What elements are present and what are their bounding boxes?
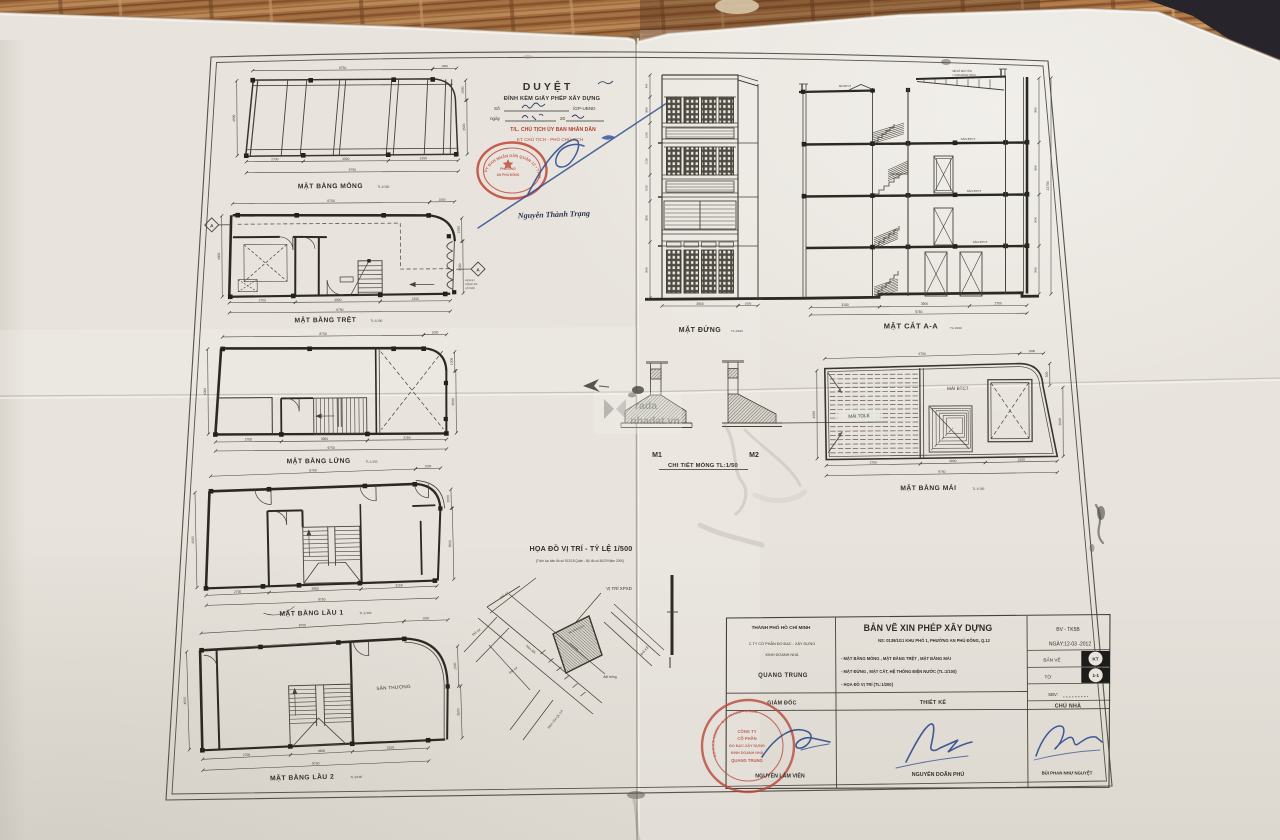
svg-text:3900: 3900	[342, 157, 350, 161]
svg-text:HỌA ĐỒ VỊ TRÍ - TỶ LỆ 1/500: HỌA ĐỒ VỊ TRÍ - TỶ LỆ 1/500	[530, 543, 633, 553]
svg-text:4000: 4000	[217, 253, 221, 261]
svg-text:SÀN BTCT: SÀN BTCT	[961, 137, 976, 141]
svg-text:3900: 3900	[311, 587, 319, 591]
svg-text:1000: 1000	[461, 86, 465, 94]
svg-text:T/L. CHỦ TỊCH ỦY BAN NHÂN DÂN: T/L. CHỦ TỊCH ỦY BAN NHÂN DÂN	[510, 126, 596, 133]
svg-text:1000: 1000	[439, 198, 446, 202]
svg-text:3900: 3900	[645, 267, 649, 273]
svg-text:nhadat.vn: nhadat.vn	[630, 415, 680, 427]
svg-text:đất trống: đất trống	[603, 675, 616, 679]
svg-text:9750: 9750	[318, 597, 326, 601]
svg-text:MÁI BTCT: MÁI BTCT	[839, 84, 852, 88]
svg-text:3150: 3150	[841, 303, 849, 307]
svg-text:Số: Số	[494, 106, 500, 111]
svg-text:VỊ TRÍ XPXD: VỊ TRÍ XPXD	[606, 586, 632, 591]
svg-text:8750: 8750	[919, 352, 927, 356]
svg-text:3800: 3800	[645, 107, 649, 113]
svg-text:9750: 9750	[312, 761, 320, 765]
svg-text:DUYỆT: DUYỆT	[523, 80, 574, 93]
svg-text:SÀN BTCT: SÀN BTCT	[973, 240, 988, 244]
svg-text:NS: 0139/1G1 KHU PHỐ 1, PHƯỜNG: NS: 0139/1G1 KHU PHỐ 1, PHƯỜNG AN PHÚ ĐÔ…	[878, 638, 991, 643]
svg-text:QUANG TRUNG: QUANG TRUNG	[731, 758, 763, 763]
svg-text:4000: 4000	[232, 114, 236, 122]
svg-text:CÔNG TY: CÔNG TY	[737, 729, 756, 734]
svg-text:4000: 4000	[183, 697, 187, 705]
svg-text:4000: 4000	[812, 411, 816, 419]
svg-text:3150: 3150	[1018, 458, 1026, 462]
svg-text:2700: 2700	[870, 461, 878, 465]
svg-text:1000: 1000	[422, 616, 429, 620]
svg-text:AN PHÚ ĐÔNG: AN PHÚ ĐÔNG	[497, 172, 520, 177]
svg-text:8750: 8750	[339, 66, 347, 70]
svg-text:3900: 3900	[1034, 267, 1038, 273]
svg-text:SBV:: SBV:	[1048, 692, 1058, 697]
svg-text:8750: 8750	[299, 623, 307, 627]
svg-text:13700: 13700	[1046, 181, 1050, 190]
svg-text:1000: 1000	[446, 495, 450, 503]
svg-text:8750: 8750	[309, 468, 317, 472]
svg-text:- HỌA ĐỒ VỊ TRÍ (TL:1/200): - HỌA ĐỒ VỊ TRÍ (TL:1/200)	[841, 682, 894, 687]
svg-text:9750: 9750	[938, 470, 946, 474]
svg-text:C.TY CỔ PHẦN ĐO ĐẠC - XÂY DỰNG: C.TY CỔ PHẦN ĐO ĐẠC - XÂY DỰNG	[749, 641, 815, 646]
svg-text:- MẶT BẰNG MÓNG , MẶT BẰNG TRỆ: - MẶT BẰNG MÓNG , MẶT BẰNG TRỆT , MẶT BẰ…	[841, 656, 951, 661]
svg-text:1-1: 1-1	[1092, 673, 1099, 678]
svg-text:SÀN BTCT: SÀN BTCT	[967, 189, 982, 193]
svg-text:TL:1/100: TL:1/100	[370, 319, 382, 323]
svg-text:3900: 3900	[318, 749, 326, 753]
svg-text:L=1000 ĐÓNG TRẦN: L=1000 ĐÓNG TRẦN	[952, 74, 975, 77]
svg-text:TỜ: TỜ	[1045, 674, 1052, 680]
svg-text:9750: 9750	[349, 168, 357, 172]
svg-text:2700: 2700	[259, 298, 267, 302]
svg-text:THIẾT KẾ: THIẾT KẾ	[920, 699, 947, 706]
svg-text:2700: 2700	[243, 753, 251, 757]
svg-text:3500: 3500	[458, 263, 462, 271]
svg-text:KINH DOANH NHÀ: KINH DOANH NHÀ	[766, 653, 799, 657]
svg-text:MẶT ĐỨNG: MẶT ĐỨNG	[679, 325, 722, 334]
svg-text:BẢN VẼ: BẢN VẼ	[1043, 657, 1060, 663]
svg-text:1000: 1000	[457, 226, 461, 234]
svg-text:BẢN VẼ XIN PHÉP XÂY DỰNG: BẢN VẼ XIN PHÉP XÂY DỰNG	[864, 622, 993, 633]
svg-text:KINH DOANH NHÀ: KINH DOANH NHÀ	[731, 750, 764, 755]
svg-text:CHI TIẾT MÓNG TL:1/50: CHI TIẾT MÓNG TL:1/50	[668, 461, 738, 469]
svg-text:3600: 3600	[1034, 217, 1038, 223]
svg-text:2700: 2700	[995, 302, 1003, 306]
svg-text:1000: 1000	[425, 464, 432, 468]
svg-text:2700: 2700	[645, 158, 649, 164]
svg-text:3500: 3500	[451, 398, 455, 406]
svg-text:MÁI BTCT: MÁI BTCT	[947, 385, 969, 391]
svg-text:400: 400	[645, 83, 649, 88]
svg-text:9750: 9750	[336, 308, 344, 312]
svg-text:3900: 3900	[321, 437, 329, 441]
svg-text:TL:1/100: TL:1/100	[731, 329, 743, 333]
svg-text:3500: 3500	[1058, 418, 1062, 426]
svg-text:(Trích lục bản đồ số 912/18 Qu: (Trích lục bản đồ số 912/18 Quận - Bộ đồ…	[536, 559, 624, 563]
svg-text:TL:1/100: TL:1/100	[366, 460, 378, 464]
svg-text:QUANG TRUNG: QUANG TRUNG	[758, 673, 808, 679]
svg-text:MẶT CẮT A-A: MẶT CẮT A-A	[884, 322, 938, 331]
svg-text:M1: M1	[652, 452, 662, 459]
svg-text:MẶT BẰNG TRỆT: MẶT BẰNG TRỆT	[294, 315, 356, 324]
svg-text:3150: 3150	[387, 745, 395, 749]
svg-text:3150: 3150	[420, 156, 428, 160]
svg-text:ĐÍNH KÈM GIẤY PHÉP XÂY DỰNG: ĐÍNH KÈM GIẤY PHÉP XÂY DỰNG	[504, 94, 600, 102]
svg-text:3500: 3500	[448, 540, 452, 548]
svg-text:9750: 9750	[327, 446, 335, 450]
svg-text:3150: 3150	[403, 436, 411, 440]
svg-text:3800: 3800	[645, 215, 649, 221]
svg-text:TL:1/100: TL:1/100	[359, 611, 371, 615]
svg-text:8750: 8750	[319, 332, 327, 336]
svg-text:THÀNH PHỐ HỒ CHÍ MINH: THÀNH PHỐ HỒ CHÍ MINH	[752, 623, 811, 630]
svg-text:CHỦ NHÀ: CHỦ NHÀ	[1055, 703, 1082, 710]
svg-text:1000: 1000	[450, 358, 454, 366]
svg-text:TL:1/100: TL:1/100	[350, 775, 362, 779]
svg-text:1000: 1000	[645, 132, 649, 138]
svg-text:KT: KT	[1092, 657, 1098, 662]
svg-text:3150: 3150	[412, 297, 420, 301]
svg-text:rada: rada	[635, 400, 657, 412]
svg-text:M2: M2	[749, 452, 759, 459]
svg-text:3500: 3500	[462, 123, 466, 131]
svg-text:TL:1/100: TL:1/100	[377, 185, 389, 189]
svg-text:4000: 4000	[203, 388, 207, 396]
svg-text:/GP-UBND: /GP-UBND	[573, 106, 596, 111]
svg-text:2700: 2700	[271, 157, 279, 161]
svg-text:8750: 8750	[327, 199, 335, 203]
svg-text:4000: 4000	[191, 536, 195, 544]
svg-text:BV - TK5B: BV - TK5B	[1056, 627, 1080, 633]
svg-text:MÁI TOLE: MÁI TOLE	[848, 412, 870, 419]
svg-text:NGÀY:12-03 -2012: NGÀY:12-03 -2012	[1049, 641, 1091, 648]
svg-text:1000: 1000	[1028, 349, 1035, 353]
svg-text:TL:1/100: TL:1/100	[950, 326, 962, 330]
svg-text:3800: 3800	[1034, 165, 1038, 171]
svg-text:3900: 3900	[949, 459, 957, 463]
svg-text:2700: 2700	[245, 437, 253, 441]
svg-text:MẶT BẰNG MÓNG: MẶT BẰNG MÓNG	[298, 181, 363, 190]
svg-text:MẶT BẰNG MÁI: MẶT BẰNG MÁI	[900, 483, 956, 492]
svg-text:1000: 1000	[441, 64, 448, 68]
svg-text:KT CHỦ TỊCH - PHÓ CHỦ TỊCH: KT CHỦ TỊCH - PHÓ CHỦ TỊCH	[517, 135, 584, 142]
svg-text:20: 20	[560, 116, 566, 121]
svg-text:TL:1/100: TL:1/100	[972, 487, 984, 491]
svg-text:1000: 1000	[432, 330, 439, 334]
svg-text:NGUYỄN DOÃN PHÚ: NGUYỄN DOÃN PHÚ	[912, 771, 965, 778]
svg-text:3900: 3900	[696, 302, 704, 306]
svg-text:1000: 1000	[453, 662, 457, 670]
svg-text:NGUYỄN LÂM VIÊN: NGUYỄN LÂM VIÊN	[755, 772, 805, 780]
svg-text:3900: 3900	[921, 302, 929, 306]
svg-text:3800: 3800	[1034, 107, 1038, 113]
svg-text:1000: 1000	[645, 185, 649, 191]
svg-text:ĐO ĐẠC-XÂY DỰNG: ĐO ĐẠC-XÂY DỰNG	[729, 743, 765, 748]
svg-text:BÙI PHAN NHƯ NGUYỆT: BÙI PHAN NHƯ NGUYỆT	[1042, 771, 1093, 776]
svg-text:9750: 9750	[915, 310, 923, 314]
svg-text:3900: 3900	[334, 298, 342, 302]
svg-text:ngày: ngày	[490, 116, 501, 121]
svg-text:2700: 2700	[234, 590, 242, 594]
svg-text:CỔ PHẦN: CỔ PHẦN	[737, 736, 756, 741]
svg-text:500: 500	[1045, 372, 1049, 378]
svg-text:- MẶT ĐỨNG , MẶT CẮT, HỆ THỐNG: - MẶT ĐỨNG , MẶT CẮT, HỆ THỐNG ĐIỆN NƯỚC…	[841, 669, 957, 674]
svg-text:1000: 1000	[745, 301, 752, 305]
svg-text:3500: 3500	[456, 708, 460, 716]
svg-text:3150: 3150	[395, 583, 403, 587]
